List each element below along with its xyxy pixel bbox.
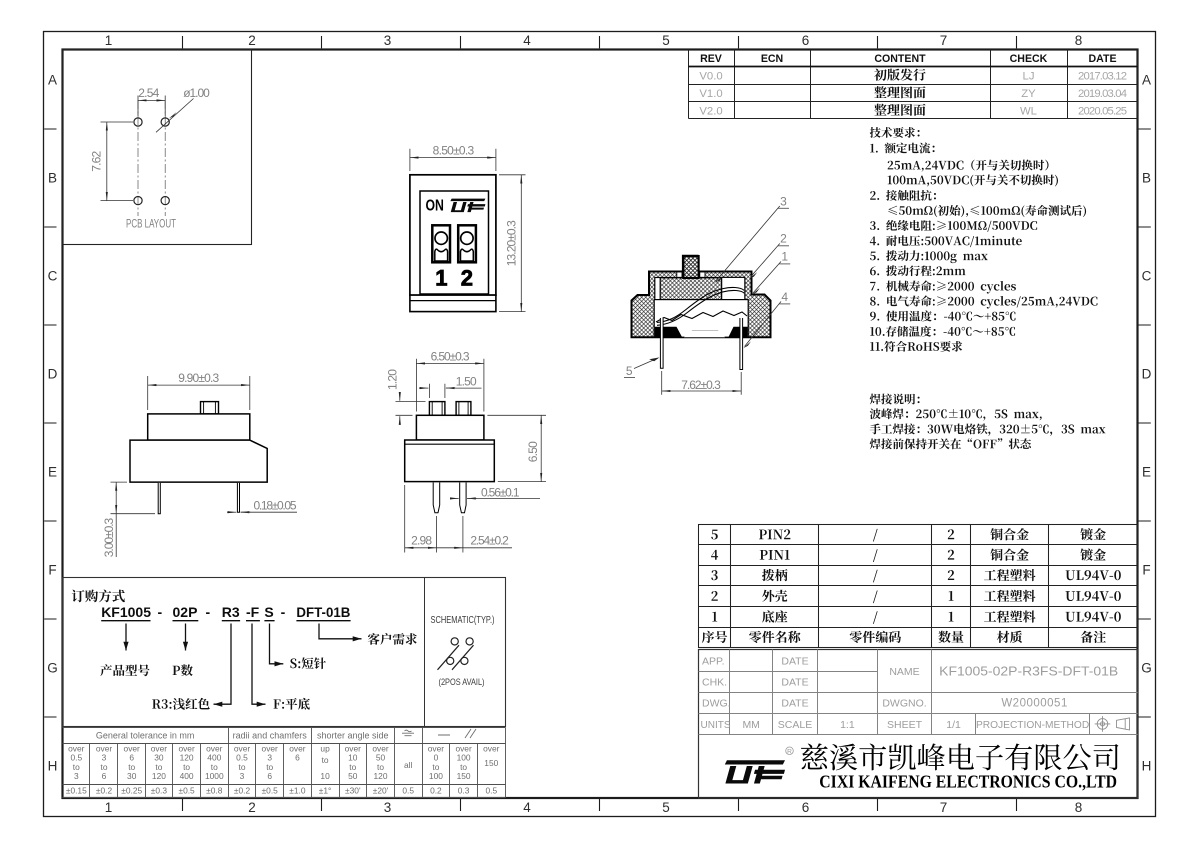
svg-text:ZY: ZY (1021, 88, 1036, 100)
svg-text:7: 7 (940, 33, 948, 48)
svg-text:A: A (1142, 73, 1151, 88)
svg-text:8: 8 (1075, 800, 1083, 815)
svg-text:DATE: DATE (781, 676, 808, 688)
svg-text:S: S (264, 604, 273, 620)
svg-text:D: D (48, 367, 58, 382)
svg-text:1: 1 (435, 266, 447, 291)
svg-text:DATE: DATE (781, 655, 808, 667)
svg-text:A: A (48, 73, 57, 88)
svg-text:General tolerance in mm: General tolerance in mm (96, 731, 195, 741)
svg-text:SHEET: SHEET (887, 719, 923, 731)
svg-text:PCB LAYOUT: PCB LAYOUT (126, 216, 176, 230)
svg-text:2: 2 (461, 266, 473, 291)
svg-text:3: 3 (74, 771, 79, 781)
svg-text:5: 5 (626, 364, 633, 378)
svg-text:4: 4 (523, 800, 531, 815)
svg-text:±0.2: ±0.2 (234, 786, 251, 796)
svg-text:1:1: 1:1 (840, 719, 855, 731)
svg-text:±1°: ±1° (319, 786, 332, 796)
svg-text:6: 6 (102, 771, 107, 781)
svg-text:CONTENT: CONTENT (874, 53, 926, 65)
svg-text:-: - (281, 604, 286, 620)
svg-text:APP.: APP. (702, 655, 725, 667)
svg-text:5: 5 (662, 800, 670, 815)
svg-text:0.18±0.05: 0.18±0.05 (254, 499, 297, 513)
svg-text:NAME: NAME (889, 666, 919, 678)
svg-text:V2.0: V2.0 (699, 106, 722, 118)
svg-text:CHECK: CHECK (1010, 53, 1048, 65)
svg-text:E: E (1142, 465, 1151, 480)
svg-text:±0.25: ±0.25 (121, 786, 142, 796)
svg-text:9.90±0.3: 9.90±0.3 (178, 371, 219, 385)
svg-text:WL: WL (1020, 106, 1037, 118)
svg-text:CIXI KAIFENG ELECTRONICS CO.,L: CIXI KAIFENG ELECTRONICS CO.,LTD (819, 772, 1117, 792)
svg-text:C: C (1142, 269, 1152, 284)
svg-text:8.50±0.3: 8.50±0.3 (433, 144, 475, 158)
svg-text:400: 400 (180, 771, 194, 781)
svg-text:6: 6 (802, 800, 810, 815)
svg-text:R: R (787, 748, 792, 755)
svg-text:3.00±0.3: 3.00±0.3 (102, 517, 116, 557)
svg-text:3: 3 (240, 771, 245, 781)
svg-text:1.50: 1.50 (456, 375, 477, 389)
svg-text:DWG.: DWG. (702, 698, 731, 710)
svg-text:REV: REV (700, 53, 722, 65)
svg-text:R3: R3 (222, 604, 240, 620)
svg-text:(2POS AVAIL): (2POS AVAIL) (439, 677, 485, 688)
svg-text:0.5: 0.5 (402, 786, 414, 796)
svg-text:2019.03.04: 2019.03.04 (1078, 88, 1127, 100)
svg-text:LJ: LJ (1023, 70, 1035, 82)
svg-text:±0.5: ±0.5 (262, 786, 279, 796)
svg-text:150: 150 (457, 771, 471, 781)
svg-text:-: - (206, 604, 211, 620)
svg-text:B: B (48, 171, 57, 186)
svg-text:10: 10 (320, 771, 330, 781)
svg-text:B: B (1142, 171, 1151, 186)
svg-text:6.50: 6.50 (526, 441, 540, 462)
svg-text:V1.0: V1.0 (699, 88, 722, 100)
svg-text:7: 7 (940, 800, 948, 815)
svg-text:all: all (404, 760, 413, 770)
svg-text:2017.03.12: 2017.03.12 (1078, 71, 1127, 83)
svg-text:±20': ±20' (373, 786, 389, 796)
svg-text:KF1005: KF1005 (101, 604, 151, 620)
svg-text:7.62±0.3: 7.62±0.3 (681, 378, 721, 392)
svg-text:6: 6 (802, 33, 810, 48)
svg-text:6.50±0.3: 6.50±0.3 (431, 349, 470, 363)
svg-text:W20000051: W20000051 (1001, 698, 1068, 710)
svg-text:KF1005-02P-R3FS-DFT-01B: KF1005-02P-R3FS-DFT-01B (939, 664, 1118, 679)
svg-text:1000: 1000 (205, 771, 224, 781)
svg-text:2.54: 2.54 (138, 86, 159, 100)
svg-text:ON: ON (426, 198, 444, 215)
svg-text:DWGNO.: DWGNO. (882, 698, 926, 710)
svg-text:V0.0: V0.0 (699, 70, 722, 82)
svg-text:ø1.00: ø1.00 (183, 86, 210, 100)
svg-text:7.62: 7.62 (90, 150, 104, 171)
svg-text:C: C (48, 269, 58, 284)
svg-text:±1.0: ±1.0 (289, 786, 306, 796)
svg-text:2.54±0.2: 2.54±0.2 (470, 534, 509, 548)
svg-text:±0.15: ±0.15 (66, 786, 87, 796)
svg-text:over: over (483, 744, 500, 754)
svg-text:120: 120 (152, 771, 166, 781)
svg-text:5: 5 (662, 33, 670, 48)
svg-text:0.5: 0.5 (485, 786, 497, 796)
svg-text:UNITS: UNITS (701, 720, 731, 731)
svg-text:2: 2 (780, 232, 787, 246)
svg-text:±30': ±30' (345, 786, 361, 796)
svg-text:H: H (48, 759, 58, 774)
svg-text:13.20±0.3: 13.20±0.3 (504, 220, 518, 266)
svg-text:4: 4 (781, 290, 788, 304)
svg-text:1: 1 (781, 250, 788, 264)
svg-text:E: E (48, 465, 57, 480)
svg-text:±0.2: ±0.2 (96, 786, 113, 796)
svg-text:30: 30 (127, 771, 137, 781)
svg-text:SCALE: SCALE (778, 719, 812, 731)
svg-text:120: 120 (374, 771, 388, 781)
svg-text:-: - (158, 604, 163, 620)
svg-text:2020.05.25: 2020.05.25 (1078, 106, 1127, 118)
svg-text:SCHEMATIC(TYP.): SCHEMATIC(TYP.) (431, 615, 495, 626)
svg-text:2.98: 2.98 (411, 534, 432, 548)
svg-text:H: H (1142, 759, 1152, 774)
svg-text:CHK.: CHK. (702, 676, 727, 688)
svg-text:D: D (1142, 367, 1152, 382)
svg-text:DATE: DATE (781, 698, 808, 710)
svg-text:6: 6 (295, 753, 300, 763)
svg-text:G: G (1141, 661, 1152, 676)
svg-text:1: 1 (105, 33, 113, 48)
svg-text:F: F (1142, 563, 1150, 578)
svg-text:MM: MM (742, 719, 760, 731)
svg-text:0.3: 0.3 (458, 786, 470, 796)
svg-text:2: 2 (248, 33, 256, 48)
svg-text:0.56±0.1: 0.56±0.1 (481, 485, 520, 499)
svg-text:±0.8: ±0.8 (206, 786, 223, 796)
svg-text:8: 8 (1075, 33, 1083, 48)
svg-text:-F: -F (246, 604, 260, 620)
svg-text:100: 100 (429, 771, 443, 781)
svg-text:3: 3 (384, 800, 392, 815)
svg-text:±0.5: ±0.5 (178, 786, 195, 796)
svg-text:to: to (322, 755, 329, 765)
svg-text:0.2: 0.2 (430, 786, 442, 796)
svg-text:6: 6 (267, 771, 272, 781)
svg-text:F: F (48, 563, 56, 578)
svg-text:1/1: 1/1 (946, 719, 961, 731)
svg-text:1.20: 1.20 (386, 369, 400, 390)
svg-text:radii and chamfers: radii and chamfers (233, 731, 308, 741)
svg-text:2: 2 (248, 800, 256, 815)
svg-text:up: up (320, 744, 330, 754)
svg-text:ECN: ECN (761, 53, 783, 65)
svg-text:3: 3 (780, 194, 787, 208)
svg-text:3: 3 (384, 33, 392, 48)
svg-text:02P: 02P (173, 604, 198, 620)
svg-text:4: 4 (523, 33, 531, 48)
svg-text:50: 50 (348, 771, 358, 781)
svg-text:DATE: DATE (1088, 53, 1116, 65)
svg-text:shorter angle side: shorter angle side (317, 731, 389, 741)
svg-text:G: G (47, 661, 58, 676)
svg-text:±0.3: ±0.3 (151, 786, 168, 796)
svg-text:DFT-01B: DFT-01B (296, 604, 350, 620)
svg-text:PROJECTION-METHOD: PROJECTION-METHOD (976, 720, 1089, 731)
svg-text:150: 150 (484, 758, 498, 768)
svg-text:1: 1 (105, 800, 113, 815)
